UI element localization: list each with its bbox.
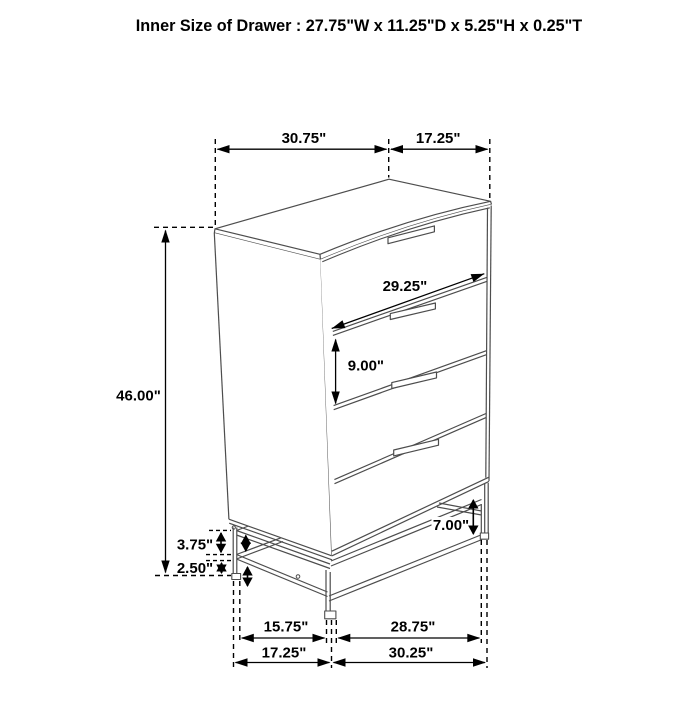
svg-text:30.75": 30.75": [282, 130, 327, 147]
svg-text:17.25": 17.25": [262, 645, 307, 662]
svg-text:7.00": 7.00": [433, 517, 469, 534]
svg-text:2.50": 2.50": [177, 560, 213, 577]
svg-text:9.00": 9.00": [348, 358, 384, 375]
svg-text:46.00": 46.00": [116, 388, 161, 405]
svg-text:28.75": 28.75": [391, 619, 436, 636]
svg-text:15.75": 15.75": [264, 619, 309, 636]
svg-text:30.25": 30.25": [389, 645, 434, 662]
svg-text:29.25": 29.25": [383, 278, 428, 295]
svg-text:3.75": 3.75": [177, 537, 213, 554]
svg-text:Inner Size of Drawer : 27.75"W: Inner Size of Drawer : 27.75"W x 11.25"D…: [136, 17, 582, 35]
svg-text:17.25": 17.25": [416, 130, 461, 147]
